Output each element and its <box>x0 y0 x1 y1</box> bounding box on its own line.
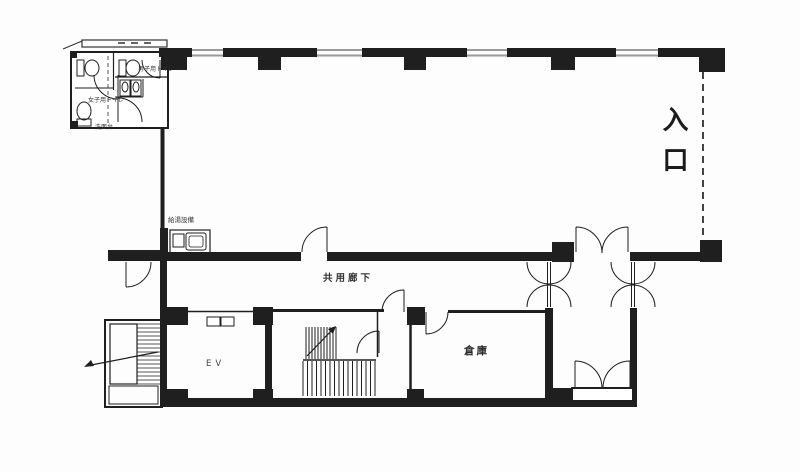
stair-direction-arrow <box>84 352 158 367</box>
entrance-label: 入口 <box>660 106 686 186</box>
door-arc <box>426 312 448 334</box>
column <box>165 307 572 407</box>
ev-room <box>160 258 272 407</box>
ev-equipment <box>221 317 234 326</box>
exterior-stairs <box>84 320 162 407</box>
stairwell <box>272 290 404 396</box>
swing-door-double <box>611 262 655 307</box>
vestibule <box>572 308 637 407</box>
elevator-label: EV <box>206 360 225 369</box>
toilet-block <box>71 52 168 128</box>
door-arc <box>302 227 628 253</box>
swing-door-double <box>527 262 571 307</box>
floor-plan: 男子用トイレ 女子用トイレ 洗面台 給湯設備 共用廊下 入口 EV 倉庫 <box>0 0 800 472</box>
washstand-label: 洗面台 <box>95 125 113 131</box>
warehouse-label: 倉庫 <box>464 346 489 357</box>
top-wall <box>159 48 725 73</box>
door-arc <box>126 262 151 287</box>
awning <box>63 40 167 52</box>
corridor <box>126 262 655 307</box>
corner-mark <box>71 52 77 58</box>
door-arc <box>357 290 404 353</box>
kitchenette <box>160 228 210 255</box>
corridor-label: 共用廊下 <box>323 274 373 284</box>
door-arc <box>575 361 630 388</box>
mens-toilet-label: 男子用トイレ <box>138 67 174 73</box>
floor-plan-drawing <box>0 0 800 472</box>
entrance-opening <box>700 72 722 262</box>
ev-equipment <box>207 317 220 326</box>
kitchenette-label: 給湯設備 <box>168 217 194 224</box>
column <box>552 242 574 262</box>
womens-toilet-label: 女子用トイレ <box>88 98 124 104</box>
door-threshold <box>572 388 633 401</box>
main-bottom-wall <box>108 227 722 262</box>
